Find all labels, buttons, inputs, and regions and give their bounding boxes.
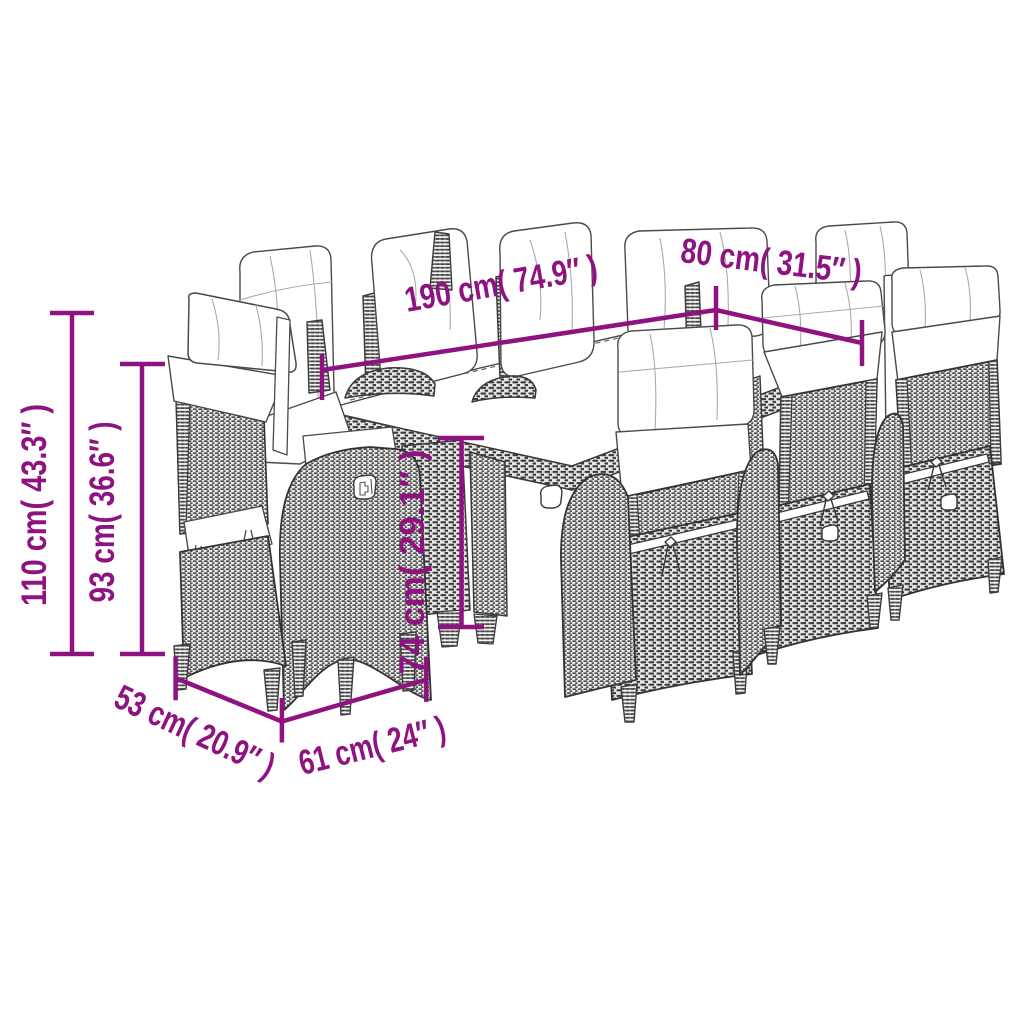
svg-text:93 cm( 36.6″ ): 93 cm( 36.6″ ): [83, 422, 122, 603]
svg-text:74 cm( 29.1″ ): 74 cm( 29.1″ ): [393, 450, 432, 675]
svg-text:110 cm( 43.3″ ): 110 cm( 43.3″ ): [15, 404, 54, 606]
